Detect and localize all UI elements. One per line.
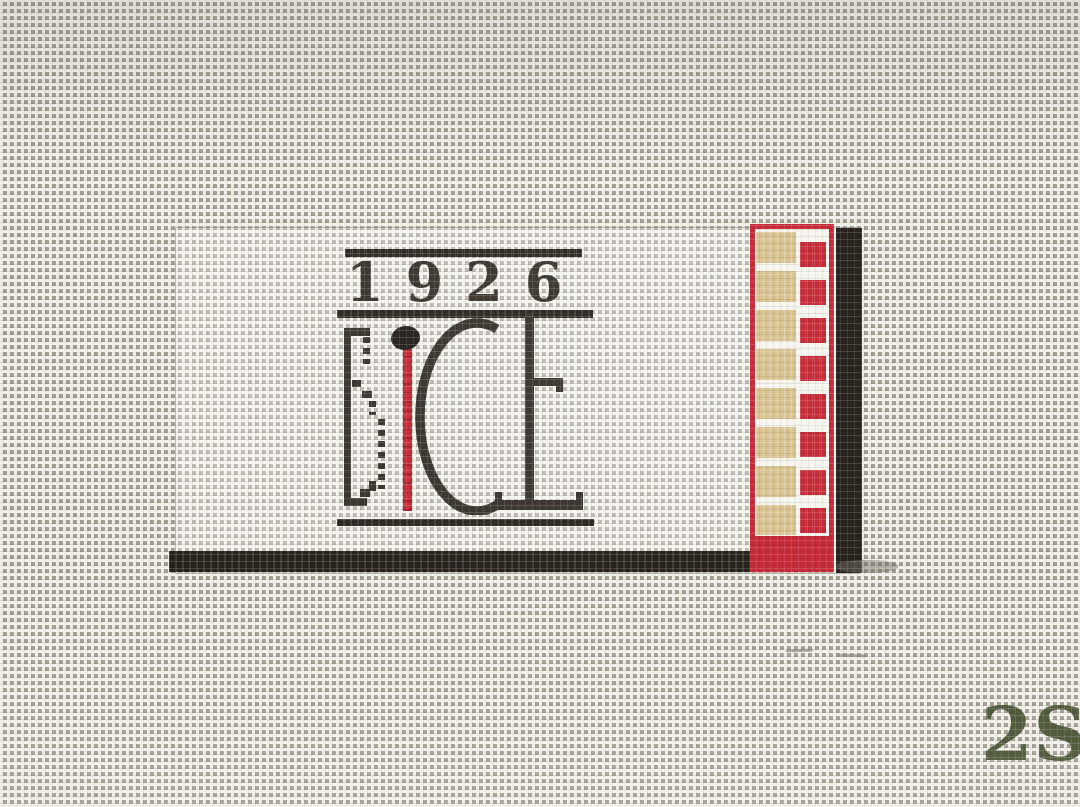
matchstick-tan-block xyxy=(756,310,796,341)
matchstick-tan-block xyxy=(756,388,796,419)
matchstick-red-block xyxy=(800,432,826,457)
matchstick-tan-column xyxy=(756,230,796,535)
matchstick-red-block xyxy=(800,508,826,533)
matchstick-tan-block xyxy=(756,271,796,302)
letter-e-serif xyxy=(576,492,583,501)
strip-drop-shadow xyxy=(836,228,862,573)
letter-b-bottom-stitch xyxy=(360,489,370,497)
letter-b-top-curl xyxy=(363,337,370,364)
matchstick-tan-block xyxy=(756,427,796,458)
matchstick-red-block xyxy=(800,356,826,381)
letter-b-foot xyxy=(344,498,367,506)
base-rule xyxy=(169,551,762,572)
logo-underline xyxy=(337,519,594,526)
letter-e-mid-tick xyxy=(556,378,563,392)
matchstick-red-column xyxy=(800,230,826,535)
letter-b-stem xyxy=(344,328,351,504)
matchstick-red-block xyxy=(800,242,826,267)
matchstick-red-block xyxy=(800,394,826,419)
stitch-count-mark: 2S xyxy=(981,698,1080,772)
matchstick-tan-block xyxy=(756,505,796,535)
letter-c-curve xyxy=(410,315,520,515)
matchstick-tan-block xyxy=(756,466,796,497)
letter-b-mid-stitch xyxy=(369,401,376,415)
letter-e-serif xyxy=(495,492,502,501)
shadow-tail xyxy=(836,560,898,573)
letter-b-bowl xyxy=(378,419,385,489)
letter-b-top-arm xyxy=(344,328,370,336)
matchstick-red-block xyxy=(800,470,826,495)
matchstick-red-block xyxy=(800,280,826,305)
strip-bottom-band xyxy=(750,536,834,571)
letter-e-bottom-bar xyxy=(495,500,583,510)
letter-b-mid-stitch xyxy=(362,391,372,398)
matchbook-strip xyxy=(756,230,829,535)
letter-e-stem xyxy=(525,313,534,507)
matchstick-tan-block xyxy=(756,349,796,380)
matchstick-tan-block xyxy=(756,232,796,263)
letter-b-mid-stitch xyxy=(352,380,361,387)
matchstick-red-block xyxy=(800,318,826,343)
letter-b-bottom-stitch xyxy=(369,481,376,491)
pencil-mark xyxy=(837,654,866,658)
needlepoint-canvas-photo: 1926 2S xyxy=(0,0,1080,807)
pencil-mark xyxy=(786,649,813,653)
year-text: 1926 xyxy=(346,255,584,309)
